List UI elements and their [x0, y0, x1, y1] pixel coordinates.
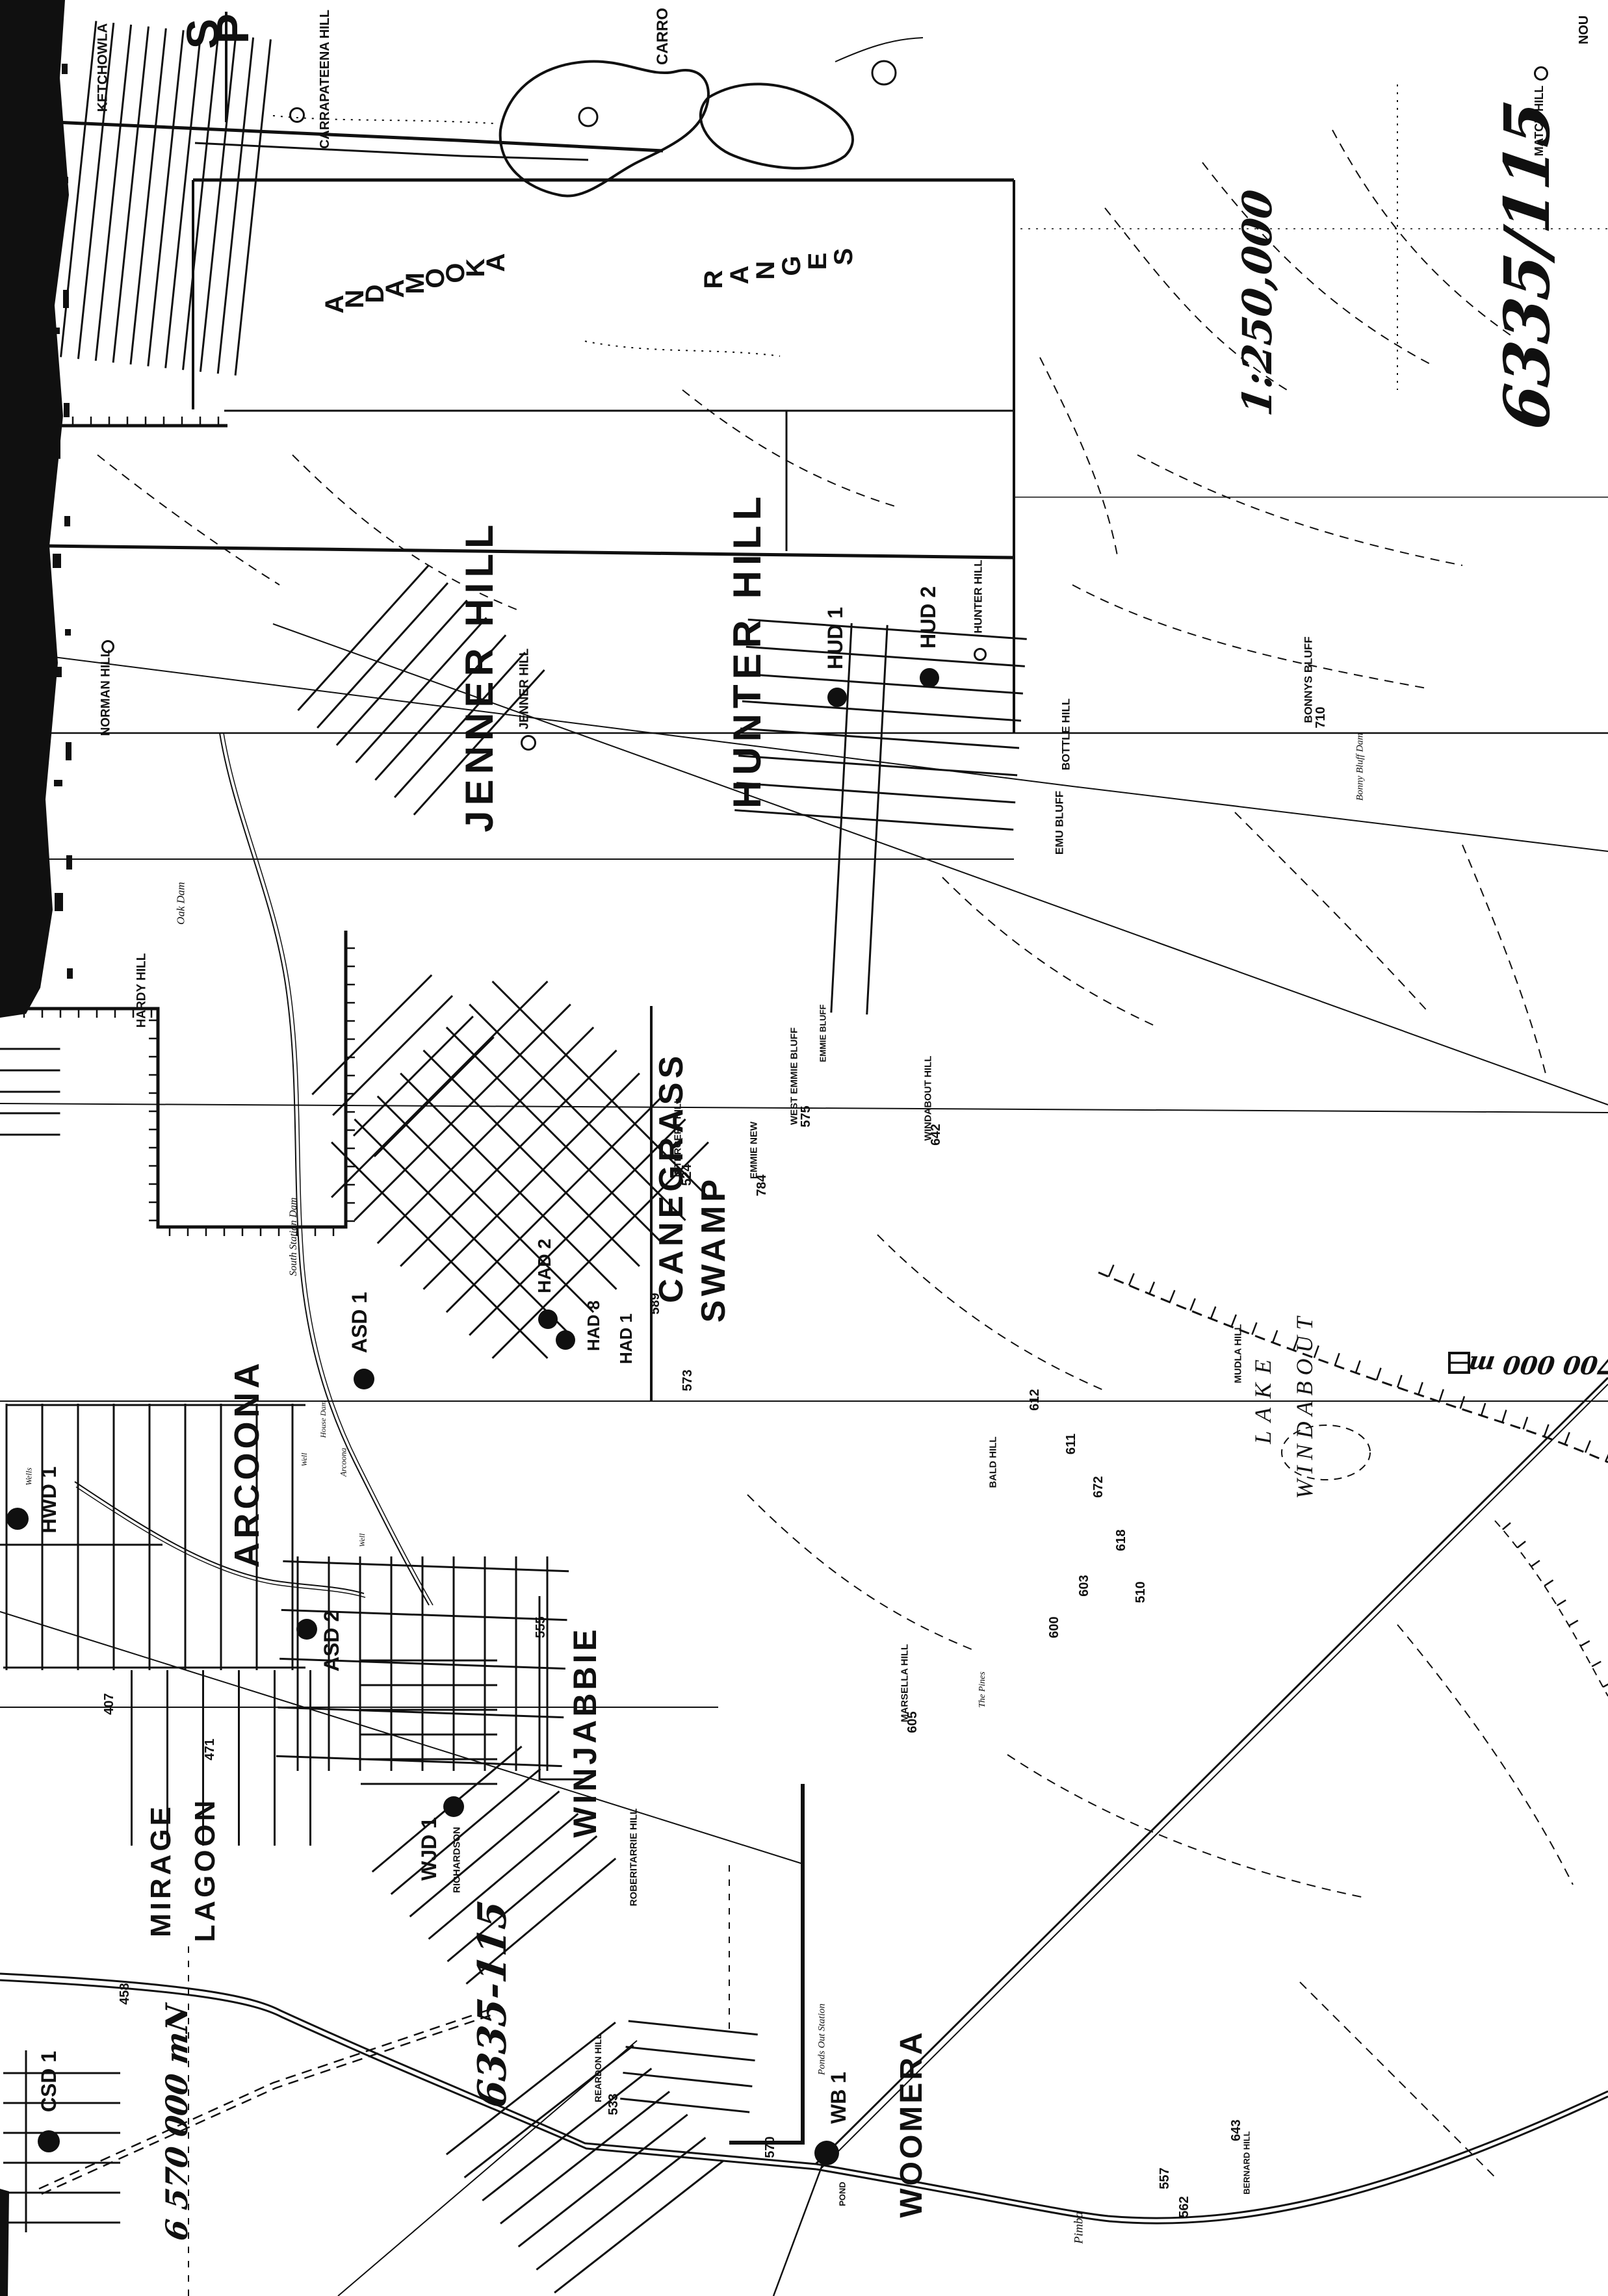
elevation-label: 643	[1230, 2119, 1243, 2141]
region-letter: S	[831, 248, 857, 266]
place-label: BALD HILL	[989, 1436, 998, 1488]
elevation-label: 458	[118, 1983, 131, 2004]
drillhole-label: WB 1	[828, 2072, 849, 2124]
place-label: BOTTLE HILL	[1061, 699, 1072, 770]
elevation-label: 510	[1134, 1581, 1147, 1603]
place-label: HUNTER HILL	[728, 491, 767, 808]
elevation-label: 612	[1028, 1389, 1041, 1410]
drillhole-label: HAD 1	[617, 1313, 634, 1364]
feature-label: Pimba	[1073, 2212, 1085, 2244]
feature-label: House Dam	[319, 1401, 327, 1438]
elevation-label: 557	[1158, 2167, 1171, 2189]
place-label: HARDY HILL	[136, 953, 148, 1028]
elevation-label: 533	[607, 2093, 620, 2115]
drillhole-marker	[827, 688, 847, 707]
drillhole-label: WJD 1	[419, 1817, 439, 1881]
place-label: EMMIE NEW	[749, 1122, 759, 1179]
elevation-label: 603	[1078, 1575, 1091, 1596]
well-circle	[1534, 66, 1548, 81]
place-label: CARRO	[655, 8, 671, 65]
place-label: REARDON HILL	[593, 2033, 603, 2102]
drillhole-label: HUD 2	[918, 586, 939, 649]
region-letter: A	[483, 253, 509, 272]
drillhole-marker	[920, 668, 939, 688]
elevation-label: 611	[1065, 1434, 1078, 1454]
drillhole-label: HAD 8	[585, 1300, 602, 1351]
handwritten-note: 6335/115	[1496, 97, 1559, 433]
place-label: KETCHOWLA	[96, 23, 110, 112]
place-label: ROBERITARRIE HILL	[629, 1809, 639, 1907]
elevation-label: 600	[1048, 1616, 1061, 1638]
feature-label: South Station Dam	[289, 1198, 299, 1276]
feature-label: Arcoona	[339, 1448, 348, 1477]
place-label: MIRAGE	[147, 1803, 175, 1937]
place-label: SWAMP	[697, 1176, 731, 1322]
region-letter: N	[753, 261, 779, 280]
well-circle	[974, 648, 987, 661]
place-label: ARCOONA	[229, 1360, 265, 1568]
place-label: NOU	[1577, 16, 1590, 44]
place-label: WINJABBIE	[569, 1626, 601, 1838]
elevation-label: 573	[681, 1369, 694, 1391]
feature-label: Oak Dam	[175, 882, 187, 925]
handwritten-note: 1:250,000	[1238, 187, 1278, 418]
place-label: WEST EMMIE BLUFF	[790, 1027, 799, 1125]
map-labels-layer: JENNER HILLHUNTER HILLCANEGRASSSWAMPARCO…	[0, 0, 1608, 2296]
well-circle	[289, 107, 305, 123]
handwritten-note: 6 570 000 mN	[162, 2002, 192, 2242]
feature-label: Well	[358, 1534, 366, 1547]
place-label: BONNYS BLUFF	[1303, 636, 1314, 723]
well-circle	[101, 640, 114, 653]
handwritten-note: 6335-115	[473, 1898, 512, 2110]
place-label: NORMAN HILL	[100, 650, 112, 736]
place-label: CARRAPATEENA HILL	[318, 10, 331, 149]
drillhole-label: ASD 2	[321, 1610, 342, 1671]
elevation-label: 618	[1115, 1529, 1128, 1551]
feature-label: The Pines	[978, 1671, 987, 1708]
place-label: EMMIE BLUFF	[819, 1005, 827, 1063]
place-label: LAGOON	[191, 1797, 220, 1942]
drillhole-label: HAD 2	[536, 1239, 554, 1293]
region-letter: R	[701, 270, 727, 289]
map-sheet: JENNER HILLHUNTER HILLCANEGRASSSWAMPARCO…	[0, 0, 1608, 2296]
region-letter: G	[779, 255, 805, 276]
water-label: LAKE	[1251, 1350, 1275, 1444]
place-label: EMU BLUFF	[1054, 791, 1065, 855]
elevation-label: 784	[755, 1174, 768, 1196]
feature-label: Wells	[25, 1467, 33, 1486]
elevation-label: 562	[1178, 2196, 1191, 2217]
place-label: POND	[838, 2182, 847, 2206]
elevation-label: 642	[929, 1124, 942, 1145]
place-label: MUDLA HILL	[1234, 1324, 1243, 1383]
place-label: P	[210, 14, 255, 44]
drillhole-marker	[296, 1619, 317, 1640]
place-label: BERNARD HILL	[1243, 2131, 1251, 2195]
feature-label: Well	[300, 1453, 308, 1467]
place-label: HUNTER HILL	[973, 560, 984, 633]
place-label: JENNER HILL	[460, 519, 499, 832]
well-circle	[521, 735, 536, 751]
water-label: WINDABOUT	[1293, 1311, 1316, 1499]
feature-label: Bonny Bluff Dam	[1356, 733, 1366, 801]
place-label: WOOMERA	[896, 2030, 927, 2217]
elevation-label: 605	[906, 1711, 919, 1733]
drillhole-marker	[556, 1330, 575, 1350]
drillhole-marker	[354, 1369, 374, 1389]
drillhole-marker	[38, 2130, 60, 2152]
drillhole-marker	[538, 1309, 558, 1329]
drillhole-label: ASD 1	[349, 1292, 370, 1353]
drillhole-marker	[443, 1796, 464, 1817]
drillhole-label: CSD 1	[38, 2051, 59, 2112]
elevation-label: 555	[534, 1616, 547, 1638]
region-letter: E	[805, 253, 831, 270]
handwritten-note: 700 000 m	[1467, 1352, 1608, 1377]
drillhole-marker	[814, 2141, 839, 2165]
elevation-label: 570	[764, 2136, 777, 2158]
region-letter: A	[727, 266, 753, 285]
elevation-label: 672	[1092, 1476, 1105, 1497]
place-label: JENNER HILL	[519, 649, 531, 730]
elevation-label: 471	[203, 1738, 216, 1760]
elevation-label: 589	[649, 1293, 662, 1314]
elevation-label: 710	[1314, 706, 1327, 728]
elevation-label: 407	[103, 1693, 116, 1714]
place-label: MARSELLA HILL	[900, 1644, 910, 1722]
elevation-label: 575	[799, 1105, 812, 1127]
drillhole-label: HWD 1	[38, 1466, 59, 1533]
feature-label: Ponds Out Station	[818, 2004, 827, 2075]
place-label: RICHARDSON	[452, 1827, 462, 1893]
drillhole-marker	[6, 1508, 29, 1530]
drillhole-label: HUD 1	[825, 607, 846, 669]
elevation-label: 524	[681, 1164, 694, 1185]
